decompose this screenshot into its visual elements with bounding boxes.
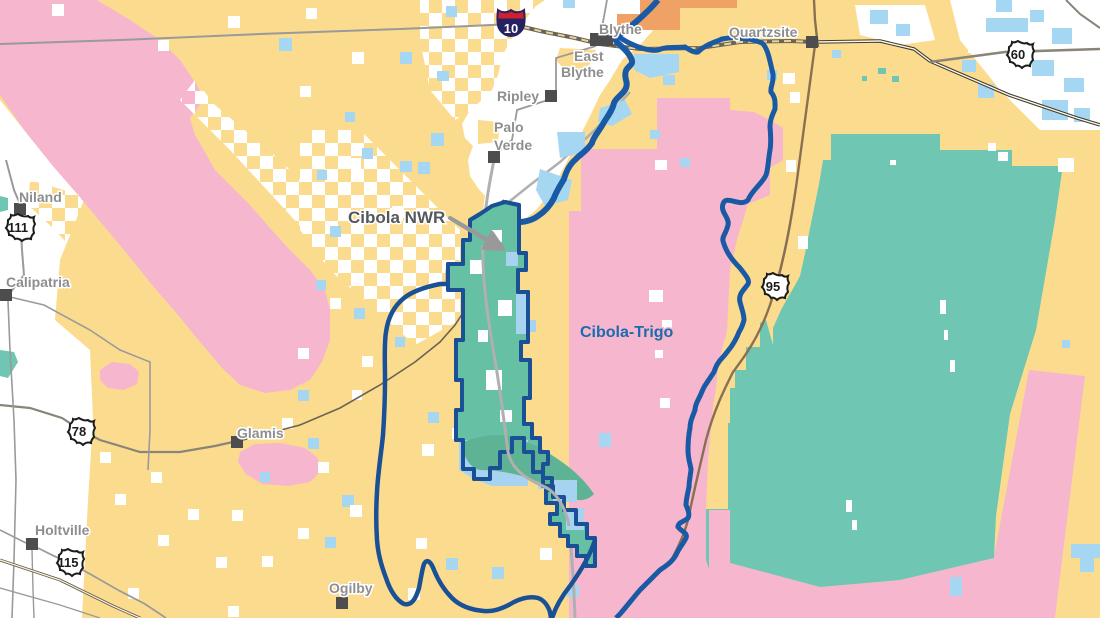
svg-text:10: 10 [504,21,518,36]
svg-text:Palo: Palo [494,119,524,135]
svg-text:60: 60 [1011,47,1025,62]
svg-text:Cibola NWR: Cibola NWR [348,208,445,227]
svg-text:Holtville: Holtville [35,522,90,538]
svg-text:111: 111 [8,220,28,235]
svg-text:Ripley: Ripley [497,88,539,104]
svg-text:Quartzsite: Quartzsite [729,24,798,40]
svg-text:Verde: Verde [494,137,532,153]
svg-text:78: 78 [72,424,86,439]
svg-text:Cibola-Trigo: Cibola-Trigo [580,324,674,341]
svg-text:Ogilby: Ogilby [329,580,373,596]
svg-text:East: East [574,48,604,64]
svg-text:Glamis: Glamis [237,425,284,441]
svg-text:Blythe: Blythe [599,21,642,37]
svg-text:95: 95 [766,279,780,294]
svg-text:115: 115 [58,555,79,570]
svg-text:Niland: Niland [19,189,62,205]
svg-text:Calipatria: Calipatria [6,274,70,290]
svg-text:Blythe: Blythe [561,64,604,80]
